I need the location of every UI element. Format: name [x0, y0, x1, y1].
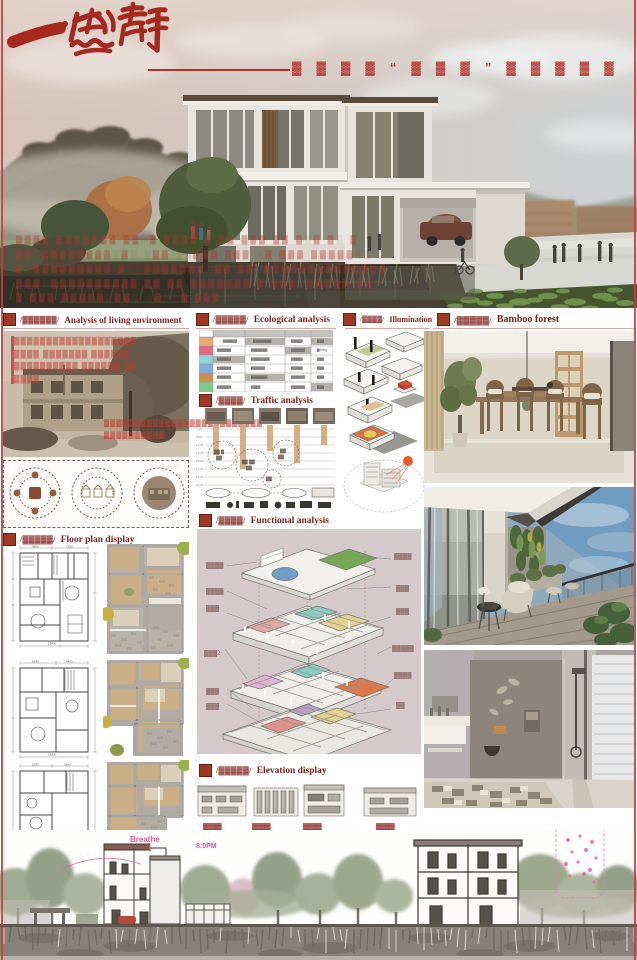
- svg-text:▓desig: ▓desig: [317, 348, 327, 352]
- svg-text:▓▓▓▓▓: ▓▓▓▓▓: [291, 357, 303, 361]
- svg-text:4420: 4420: [66, 660, 73, 664]
- svg-text:▓▓▓▓▓▓: ▓▓▓▓▓▓: [251, 366, 266, 370]
- svg-text:▓▓▓▓▓▓▓▓: ▓▓▓▓▓▓▓▓: [253, 339, 272, 343]
- svg-text:▓▓▓▓▓▓▓▓: ▓▓▓▓▓▓▓▓: [251, 357, 270, 361]
- svg-text:▓▓▓: ▓▓▓: [317, 366, 325, 370]
- svg-text:▓▓▓▓▓▓▓: ▓▓▓▓▓▓▓: [251, 348, 268, 352]
- svg-text:7500: 7500: [66, 545, 73, 549]
- svg-text:▓▓▓▓: ▓▓▓▓: [251, 385, 261, 389]
- svg-text:▓▓▓: ▓▓▓: [317, 357, 325, 361]
- svg-text:13800: 13800: [48, 642, 57, 646]
- svg-text:13:00: 13:00: [196, 451, 204, 455]
- svg-text:8:0PM: 8:0PM: [196, 843, 217, 850]
- svg-text:15:00: 15:00: [196, 459, 204, 463]
- svg-text:▓▓▓▓▓▓: ▓▓▓▓▓▓: [291, 375, 306, 379]
- svg-text:▓▓: ▓▓: [216, 455, 222, 461]
- svg-text:5900: 5900: [32, 545, 39, 549]
- svg-text:11:00: 11:00: [196, 443, 204, 447]
- svg-text:▓▓▓▓▓▓: ▓▓▓▓▓▓: [217, 366, 232, 370]
- svg-text:7:00: 7:00: [196, 427, 202, 431]
- svg-text:Breathe: Breathe: [130, 835, 160, 844]
- svg-text:▓▓▓: ▓▓▓: [317, 385, 325, 389]
- svg-text:▓▓▓▓▓▓: ▓▓▓▓▓▓: [291, 385, 306, 389]
- svg-text:▓▓: ▓▓: [246, 465, 252, 471]
- svg-text:▓▓▓▓▓: ▓▓▓▓▓: [291, 339, 303, 343]
- svg-text:▓▓▓▓▓▓: ▓▓▓▓▓▓: [291, 348, 306, 352]
- svg-text:8140: 8140: [32, 660, 39, 664]
- svg-text:17:00: 17:00: [196, 467, 204, 471]
- svg-text:13800: 13800: [48, 753, 57, 757]
- svg-text:▓▓▓▓▓▓▓: ▓▓▓▓▓▓▓: [251, 375, 268, 379]
- svg-text:▓▓▓▓▓▓: ▓▓▓▓▓▓: [217, 348, 232, 352]
- svg-text:▓▓▓: ▓▓▓: [317, 375, 325, 379]
- svg-text:▓▓▓: ▓▓▓: [317, 339, 325, 343]
- svg-text:▓▓▓▓▓: ▓▓▓▓▓: [291, 366, 303, 370]
- svg-text:5280: 5280: [32, 763, 39, 767]
- svg-text:▓▓▓▓▓▓: ▓▓▓▓▓▓: [217, 357, 232, 361]
- svg-text:▓▓▓▓▓▓: ▓▓▓▓▓▓: [217, 375, 232, 379]
- svg-text:▓▓: ▓▓: [266, 476, 272, 482]
- svg-text:19:00: 19:00: [196, 475, 204, 479]
- svg-text:▓▓▓▓▓▓: ▓▓▓▓▓▓: [217, 385, 232, 389]
- svg-text:9:00: 9:00: [196, 435, 202, 439]
- svg-text:▓▓▓▓▓▓: ▓▓▓▓▓▓: [223, 339, 238, 343]
- svg-text:21:00: 21:00: [196, 483, 204, 487]
- svg-text:▓▓: ▓▓: [278, 454, 284, 460]
- svg-text:3940: 3940: [64, 763, 71, 767]
